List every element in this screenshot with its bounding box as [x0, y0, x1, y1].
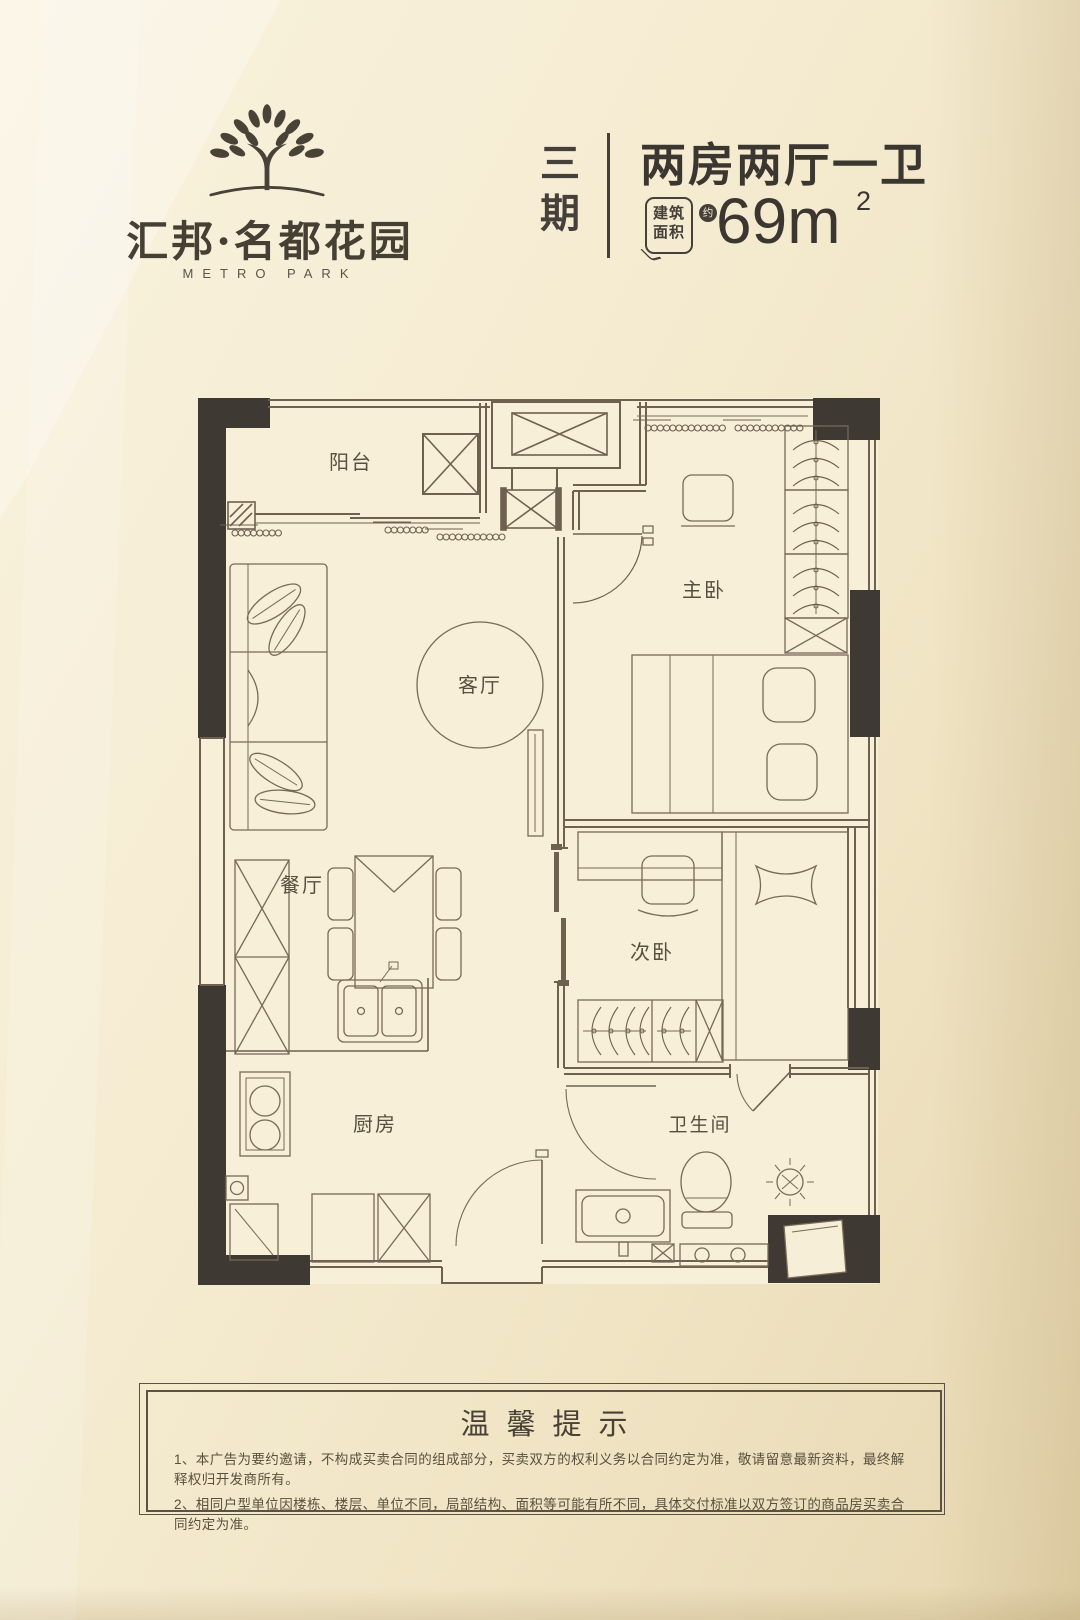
notice-line: 2、相同户型单位因楼栋、楼层、单位不同，局部结构、面积等可能有所不同，具体交付标… [174, 1493, 914, 1533]
area-value: 69m [716, 184, 841, 258]
room-label-bath: 卫生间 [668, 1114, 731, 1136]
room-label-kitchen: 厨房 [353, 1113, 397, 1136]
approx-badge: 约 [699, 204, 717, 222]
area-value-superscript: 2 [856, 186, 871, 217]
background-shade [930, 0, 1080, 1620]
background-shade [0, 1586, 1080, 1620]
phase-label: 三期 [534, 142, 578, 242]
notice-line: 1、本广告为要约邀请，不构成买卖合同的组成部分，买卖双方的权利义务以合同约定为准… [174, 1448, 914, 1488]
floor-fill [198, 398, 878, 1284]
notice-title: 温馨提示 [148, 1401, 940, 1443]
brand-name-en: METRO PARK [105, 266, 435, 281]
brand-name-cn: 汇邦·名都花园 [105, 208, 435, 269]
room-label-second: 次卧 [630, 941, 674, 964]
room-label-dining: 餐厅 [280, 874, 324, 897]
area-label-badge: 建筑面积 [645, 197, 693, 254]
room-label-living: 客厅 [458, 674, 502, 697]
floor-plan: 阳台 客厅 餐厅 厨房 主卧 次卧 卫生间 [190, 370, 880, 1290]
header-divider [607, 133, 610, 258]
room-label-master: 主卧 [682, 579, 726, 602]
poster-page: 汇邦·名都花园 METRO PARK 三期 两房两厅一卫 建筑面积 约 69m … [0, 0, 1080, 1620]
notice-box: 温馨提示 1、本广告为要约邀请，不构成买卖合同的组成部分，买卖双方的权利义务以合… [146, 1390, 942, 1512]
room-label-balcony: 阳台 [329, 451, 373, 474]
tree-logo-icon [206, 96, 328, 212]
